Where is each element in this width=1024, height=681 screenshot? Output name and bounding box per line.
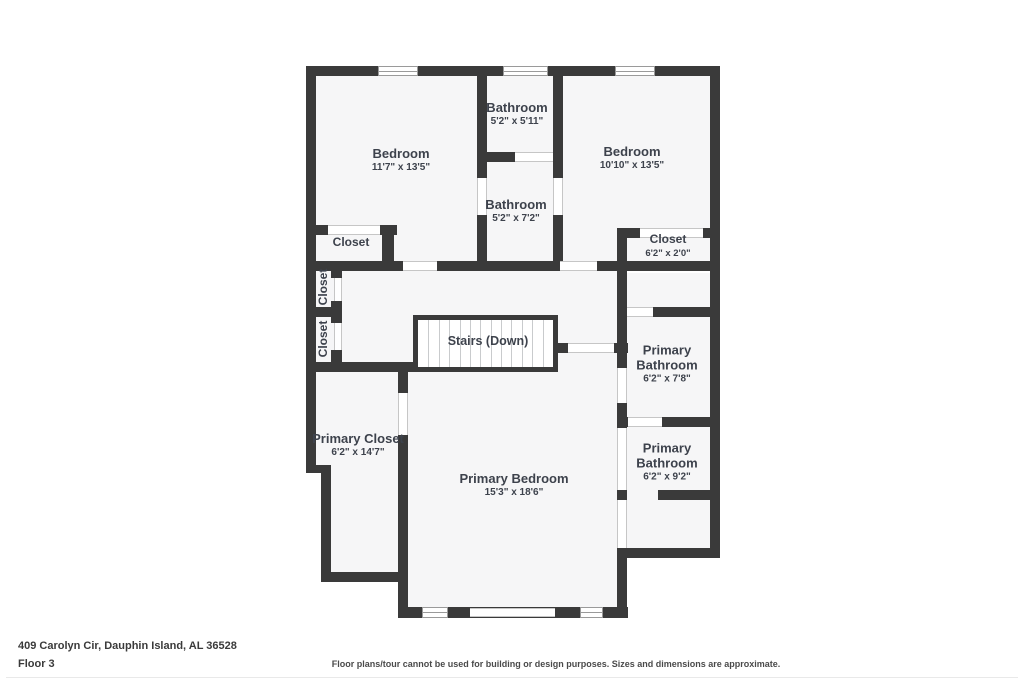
floor-primary-closet-lower [331, 472, 398, 573]
floor-label: Floor 3 [18, 658, 55, 670]
door-opening [515, 152, 553, 162]
room-name: Closet [333, 236, 370, 250]
room-label-right-bedroom: Bedroom 10'10" x 13'5" [600, 144, 664, 172]
window [422, 607, 448, 618]
room-name: Primary Bathroom [626, 342, 708, 372]
wall [321, 572, 403, 582]
room-label-stairs: Stairs (Down) [448, 334, 529, 349]
room-label-primary-bathroom-lower: Primary Bathroom 6'2" x 9'2" [626, 440, 708, 483]
door-opening [627, 307, 653, 317]
room-dims: 6'2" x 7'8" [626, 374, 708, 386]
door-opening [568, 343, 614, 353]
room-dims: 15'3" x 18'6" [459, 487, 568, 499]
stair-tread [543, 320, 544, 367]
window [580, 607, 603, 618]
room-label-left-closet: Closet [333, 236, 370, 250]
wall [331, 350, 342, 362]
door-opening [628, 417, 662, 427]
room-label-bathroom-top: Bathroom 5'2" x 5'11" [486, 100, 547, 128]
door-opening [328, 225, 380, 235]
room-dims: 6'2" x 2'0" [645, 248, 690, 259]
wall [321, 472, 331, 582]
room-label-primary-bedroom: Primary Bedroom 15'3" x 18'6" [459, 471, 568, 499]
property-address: 409 Carolyn Cir, Dauphin Island, AL 3652… [18, 640, 237, 652]
door-opening [334, 323, 342, 350]
room-name: Stairs (Down) [448, 334, 529, 349]
room-name: Bathroom [485, 197, 546, 212]
room-name: Bathroom [486, 100, 547, 115]
room-dims: 10'10" x 13'5" [600, 160, 664, 172]
wall [331, 271, 342, 278]
wall [306, 66, 316, 473]
wall [306, 261, 720, 271]
room-name: Closet [317, 269, 331, 306]
window [615, 66, 655, 76]
room-name: Closet [645, 233, 690, 247]
wall [658, 490, 710, 500]
door-opening [403, 261, 437, 271]
room-name: Bedroom [372, 146, 430, 161]
room-dims: 5'2" x 5'11" [486, 116, 547, 128]
room-name: Primary Bathroom [626, 440, 708, 470]
room-dims: 6'2" x 14'7" [312, 447, 404, 459]
room-label-primary-bathroom-upper: Primary Bathroom 6'2" x 7'8" [626, 342, 708, 385]
wall [382, 235, 394, 271]
floor-plan-canvas: Bathroom 5'2" x 5'11" Bedroom 11'7" x 13… [0, 0, 1024, 681]
door-opening [470, 608, 555, 617]
wall [617, 548, 720, 558]
room-label-hall-closet-1: Closet [317, 269, 331, 306]
room-dims: 5'2" x 7'2" [485, 213, 546, 225]
window [378, 66, 418, 76]
wall [553, 66, 563, 271]
room-dims: 6'2" x 9'2" [626, 472, 708, 484]
room-label-bathroom-lower: Bathroom 5'2" x 7'2" [485, 197, 546, 225]
door-opening [560, 261, 597, 271]
room-label-primary-closet: Primary Closet 6'2" x 14'7" [312, 431, 404, 459]
door-opening [334, 278, 342, 301]
room-name: Closet [317, 321, 331, 358]
wall [617, 228, 627, 618]
stair-tread [439, 320, 440, 367]
stair-tread [532, 320, 533, 367]
door-opening [617, 500, 627, 548]
room-name: Bedroom [600, 144, 664, 159]
wall [477, 66, 487, 271]
divider [6, 677, 1018, 678]
room-label-right-closet: Closet 6'2" x 2'0" [645, 233, 690, 259]
window [503, 66, 548, 76]
floor-upper-strip [627, 273, 710, 307]
room-name: Primary Bedroom [459, 471, 568, 486]
wall [710, 66, 720, 558]
room-label-hall-closet-2: Closet [317, 321, 331, 358]
wall [331, 301, 342, 307]
door-opening [398, 393, 408, 435]
disclaimer-text: Floor plans/tour cannot be used for buil… [332, 659, 781, 669]
room-dims: 11'7" x 13'5" [372, 162, 430, 174]
door-opening [553, 178, 563, 215]
room-label-left-bedroom: Bedroom 11'7" x 13'5" [372, 146, 430, 174]
stair-tread [428, 320, 429, 367]
room-name: Primary Closet [312, 431, 404, 446]
